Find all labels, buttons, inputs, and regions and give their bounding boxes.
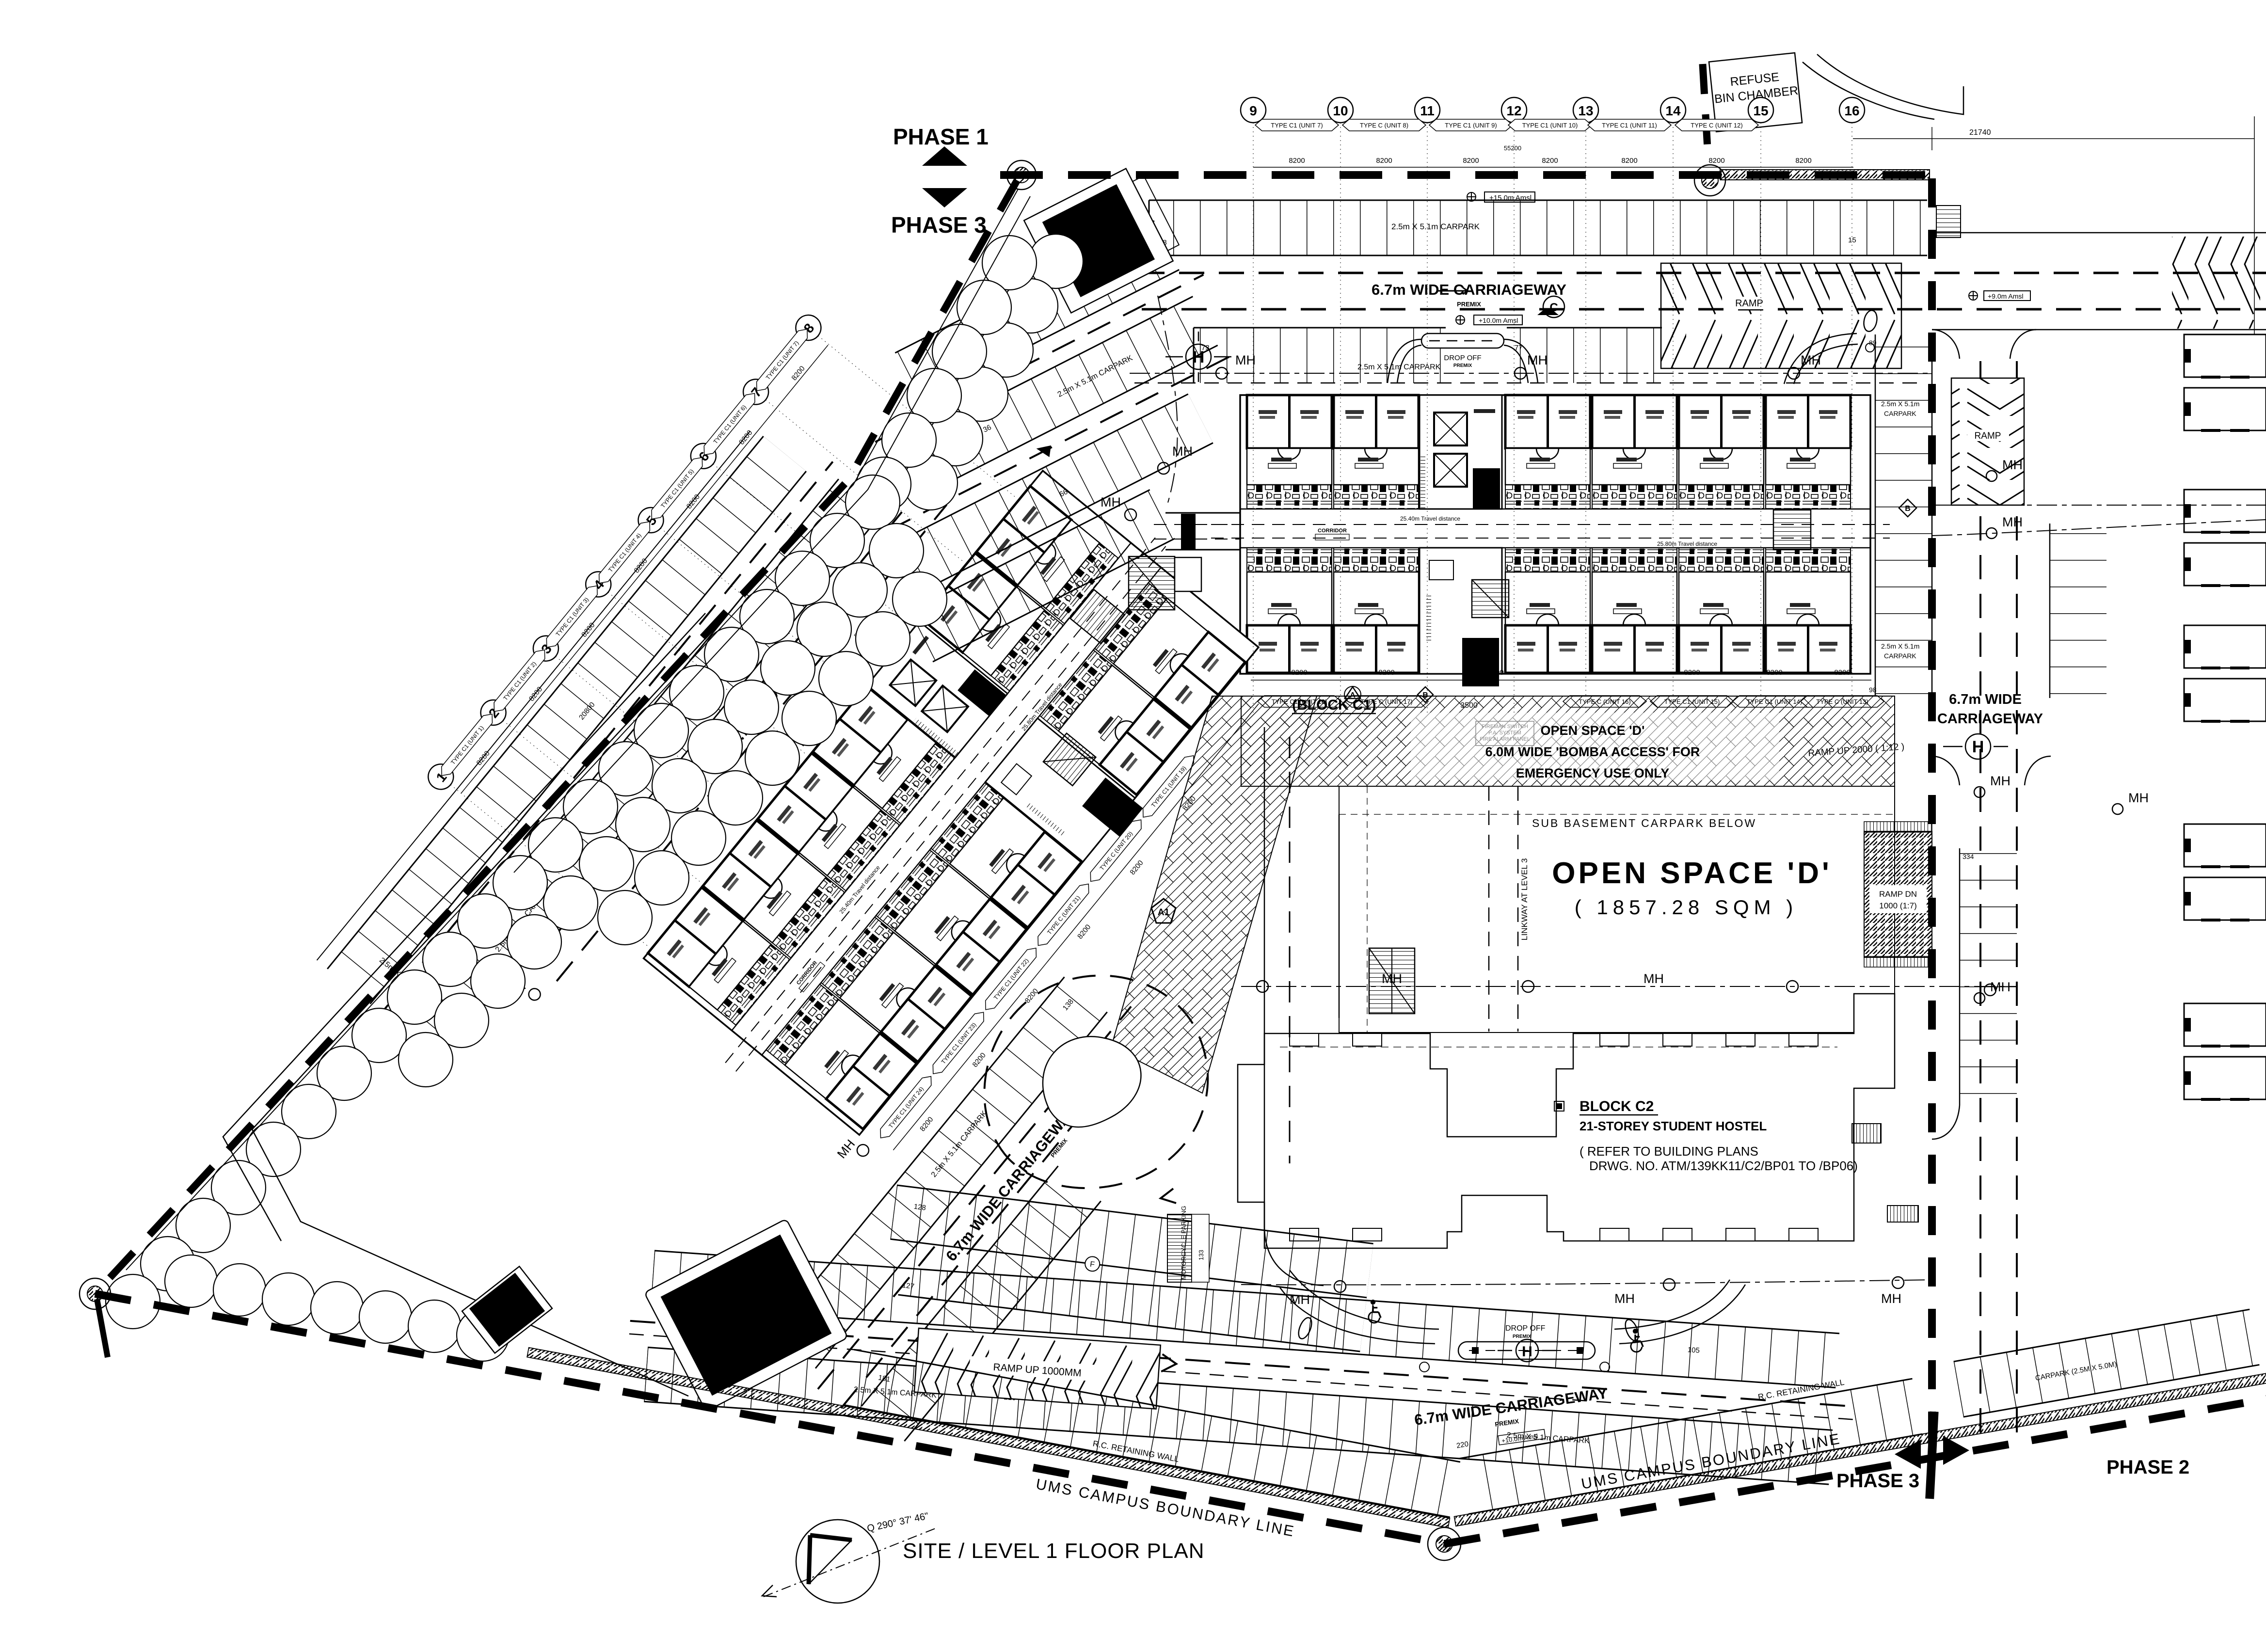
svg-text:DROP OFF: DROP OFF [1444, 354, 1481, 362]
svg-text:TYPE C1 (UNIT 9): TYPE C1 (UNIT 9) [1445, 122, 1497, 129]
svg-text:9: 9 [1249, 103, 1257, 118]
svg-text:B: B [1905, 505, 1911, 513]
svg-text:A1: A1 [1158, 907, 1170, 918]
svg-text:8200: 8200 [1289, 157, 1305, 165]
svg-text:RAMP: RAMP [1735, 298, 1763, 309]
svg-text:MH: MH [2002, 458, 2023, 472]
svg-text:2.5m X 5.1m: 2.5m X 5.1m [1881, 642, 1919, 650]
svg-text:16: 16 [1844, 103, 1859, 118]
svg-text:8200: 8200 [1621, 157, 1637, 165]
svg-text:89: 89 [1869, 339, 1877, 347]
svg-text:MH: MH [1990, 774, 2011, 788]
svg-text:25.40m Travel distance: 25.40m Travel distance [1400, 515, 1460, 522]
svg-text:6.7m WIDE: 6.7m WIDE [1949, 692, 2022, 707]
svg-text:8200: 8200 [1766, 668, 1782, 677]
svg-text:MH: MH [1101, 495, 1121, 509]
svg-text:6.7m WIDE CARRIAGEWAY: 6.7m WIDE CARRIAGEWAY [1372, 281, 1566, 298]
svg-text:MH: MH [1172, 444, 1193, 459]
svg-text:8200: 8200 [1291, 668, 1307, 677]
svg-text:OPEN SPACE 'D': OPEN SPACE 'D' [1552, 857, 1832, 890]
svg-text:127: 127 [902, 1281, 915, 1291]
svg-text:8200: 8200 [1684, 668, 1700, 677]
svg-text:+9.0m Amsl: +9.0m Amsl [1988, 292, 2024, 300]
svg-text:8200: 8200 [1463, 157, 1479, 165]
svg-text:8200: 8200 [1795, 157, 1811, 165]
svg-text:11: 11 [1420, 103, 1435, 118]
svg-text:128: 128 [913, 1203, 926, 1212]
svg-text:EMERGENCY USE ONLY: EMERGENCY USE ONLY [1516, 766, 1670, 780]
svg-text:MH: MH [1881, 1291, 1901, 1306]
svg-text:RAMP DN: RAMP DN [1879, 890, 1917, 899]
svg-text:55200: 55200 [1504, 144, 1521, 152]
svg-text:12: 12 [1506, 103, 1521, 118]
svg-text:CARPARK: CARPARK [1884, 652, 1916, 660]
svg-text:CARPARK: CARPARK [1884, 410, 1916, 417]
svg-text:MH: MH [2002, 515, 2023, 529]
svg-text:PHASE 2: PHASE 2 [2106, 1457, 2189, 1478]
svg-text:PREMIX: PREMIX [1453, 363, 1472, 368]
svg-text:BLOCK C2: BLOCK C2 [1580, 1098, 1654, 1114]
svg-text:MH: MH [1644, 971, 1664, 986]
svg-text:PHASE 1: PHASE 1 [893, 124, 989, 149]
svg-text:8200: 8200 [1834, 668, 1850, 677]
svg-text:98: 98 [1869, 686, 1877, 694]
svg-text:21740: 21740 [1969, 128, 1991, 137]
svg-text:10: 10 [1333, 103, 1348, 118]
svg-text:3600: 3600 [1487, 668, 1503, 677]
svg-text:TYPE C1 (UNIT 7): TYPE C1 (UNIT 7) [1271, 122, 1323, 129]
svg-text:TYPE C1 (UNIT 11): TYPE C1 (UNIT 11) [1602, 122, 1657, 129]
svg-text:( 1857.28 SQM ): ( 1857.28 SQM ) [1575, 896, 1798, 919]
svg-text:6.0M WIDE 'BOMBA ACCESS' FOR: 6.0M WIDE 'BOMBA ACCESS' FOR [1485, 745, 1700, 759]
svg-text:8200: 8200 [1376, 157, 1392, 165]
svg-text:PREMIX: PREMIX [1457, 301, 1481, 308]
svg-text:PHASE 3: PHASE 3 [891, 212, 987, 238]
svg-text:8200: 8200 [1542, 157, 1558, 165]
svg-text:OPEN SPACE 'D': OPEN SPACE 'D' [1541, 723, 1645, 738]
svg-text:RAMP: RAMP [1975, 431, 2001, 441]
svg-text:TYPE C (UNIT 8): TYPE C (UNIT 8) [1360, 122, 1408, 129]
svg-text:LINKWAY AT LEVEL 3: LINKWAY AT LEVEL 3 [1520, 858, 1529, 940]
svg-text:MH: MH [1527, 353, 1548, 367]
svg-text:13: 13 [1578, 103, 1593, 118]
svg-text:+10.0m Amsl: +10.0m Amsl [1479, 317, 1518, 324]
svg-text:CARRIAGEWAY: CARRIAGEWAY [1937, 711, 2043, 727]
svg-text:14: 14 [1665, 103, 1681, 118]
svg-text:MH: MH [1235, 353, 1256, 367]
svg-text:8200: 8200 [1708, 157, 1724, 165]
svg-text:( REFER TO BUILDING PLANS: ( REFER TO BUILDING PLANS [1580, 1144, 1758, 1159]
svg-text:2.5m X 5.1m: 2.5m X 5.1m [1881, 400, 1919, 408]
svg-text:H: H [1972, 738, 1984, 756]
svg-text:SUB BASEMENT CARPARK BELOW: SUB BASEMENT CARPARK BELOW [1532, 817, 1756, 829]
svg-text:TYPE C1 (UNIT 10): TYPE C1 (UNIT 10) [1522, 122, 1578, 129]
svg-text:15: 15 [1848, 236, 1856, 244]
svg-text:TYPE C (UNIT 12): TYPE C (UNIT 12) [1691, 122, 1742, 129]
svg-text:8200: 8200 [1378, 668, 1394, 677]
svg-text:H: H [1193, 348, 1205, 366]
svg-text:CORRIDOR: CORRIDOR [1318, 528, 1347, 534]
svg-text:15: 15 [1753, 103, 1768, 118]
svg-text:334: 334 [1963, 853, 1974, 860]
svg-text:2.5m X 5.1m CARPARK: 2.5m X 5.1m CARPARK [1391, 222, 1480, 231]
svg-text:133: 133 [1197, 1250, 1205, 1260]
svg-text:MOTORCYCLE PARKING: MOTORCYCLE PARKING [1180, 1206, 1187, 1280]
svg-text:MH: MH [1614, 1291, 1635, 1306]
svg-text:DRWG. NO. ATM/139KK11/C2/BP01: DRWG. NO. ATM/139KK11/C2/BP01 TO /BP06) [1589, 1159, 1858, 1173]
svg-text:PHASE 3: PHASE 3 [1836, 1470, 1919, 1492]
svg-text:SITE / LEVEL 1 FLOOR PLAN: SITE / LEVEL 1 FLOOR PLAN [903, 1539, 1204, 1563]
svg-text:25.80m Travel distance: 25.80m Travel distance [1657, 540, 1717, 547]
svg-text:21-STOREY STUDENT HOSTEL: 21-STOREY STUDENT HOSTEL [1580, 1119, 1767, 1133]
svg-text:MH: MH [2128, 791, 2149, 805]
svg-text:105: 105 [1687, 1346, 1700, 1355]
svg-text:+15.0m Amsl: +15.0m Amsl [1489, 194, 1532, 202]
svg-text:1000 (1:7): 1000 (1:7) [1879, 901, 1917, 910]
